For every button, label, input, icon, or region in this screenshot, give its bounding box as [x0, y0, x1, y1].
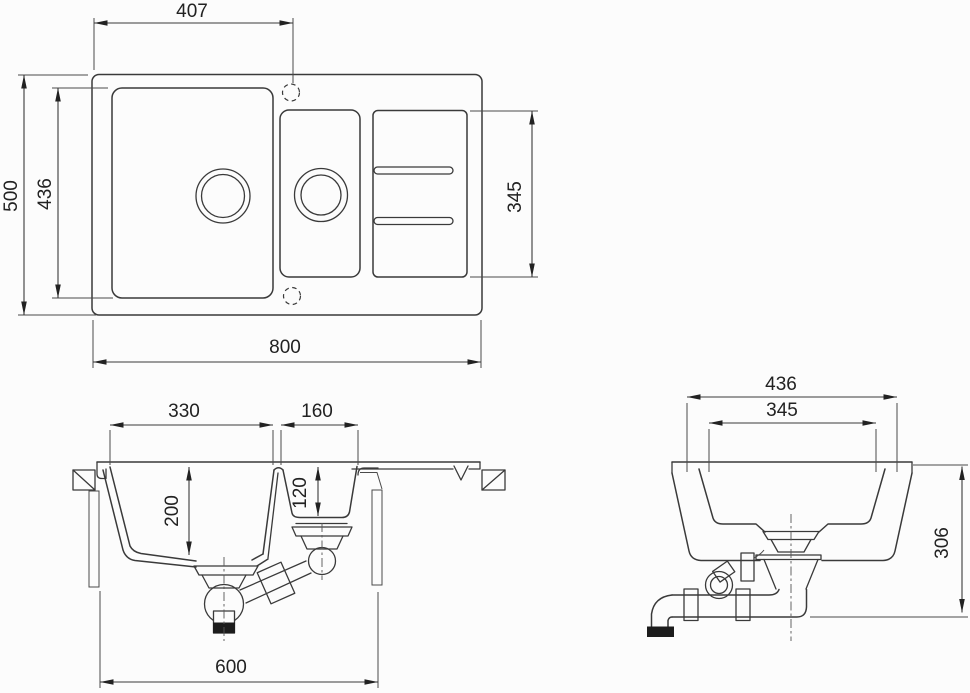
drainboard-groove-2 — [374, 218, 453, 225]
cabinet-wall-left — [89, 491, 99, 587]
dim-tap-hole-offset: 407 — [94, 1, 293, 83]
dim-label-200: 200 — [162, 495, 183, 527]
pipe-coupling-1 — [684, 589, 698, 621]
sink-section — [97, 462, 480, 567]
dim-drainboard-length: 345 — [470, 111, 538, 277]
side-inner-wall-left — [699, 469, 765, 532]
dim-label-160: 160 — [301, 401, 333, 422]
counter-edge-right — [482, 470, 505, 490]
overflow-hose-end-inner — [711, 577, 728, 594]
tap-hole-top — [283, 84, 300, 101]
dim-cabinet-width: 600 — [100, 591, 378, 688]
half-drain-hole-inner — [301, 175, 341, 215]
side-outer-wall-left — [672, 473, 760, 561]
side-outer-wall-right — [822, 473, 912, 561]
sink-technical-drawing: 407 500 436 345 800 — [0, 0, 970, 693]
side-overflow-assembly — [706, 550, 765, 599]
tap-hole-bottom — [284, 288, 301, 305]
overflow-corrugated-band — [741, 553, 754, 581]
dim-bowl-length: 436 — [35, 88, 113, 298]
side-view: 436 345 306 — [648, 374, 969, 641]
counter-edge-left — [73, 470, 95, 490]
dim-label-436-side: 436 — [765, 374, 797, 395]
main-drain-hole — [196, 169, 250, 223]
dim-label-330: 330 — [168, 401, 200, 422]
dim-label-600: 600 — [215, 657, 247, 678]
dim-install-height: 306 — [810, 465, 968, 617]
main-drain-assembly — [194, 557, 258, 641]
main-bowl — [112, 88, 273, 298]
dim-label-436-top: 436 — [35, 178, 56, 210]
main-drain-hole-inner — [202, 175, 245, 218]
dim-half-bowl-depth: 120 — [290, 467, 318, 516]
pipe-end-cap — [648, 627, 674, 637]
cabinet-wall-right — [372, 490, 382, 585]
dim-label-500: 500 — [1, 180, 22, 212]
drainboard — [373, 111, 467, 278]
sink-side-section — [672, 462, 912, 561]
dim-main-bowl-depth: 200 — [162, 467, 189, 555]
half-drain-hole — [295, 169, 348, 222]
pipe-coupling-2 — [736, 589, 750, 621]
dim-main-bowl-width: 330 — [110, 401, 273, 465]
technical-drawing-page: 407 500 436 345 800 — [0, 0, 970, 693]
dim-overall-width: 800 — [93, 320, 481, 368]
dim-half-bowl-width: 160 — [281, 401, 358, 465]
elbow-inner — [668, 617, 672, 627]
divider-left-wall — [263, 470, 274, 554]
dim-label-120: 120 — [290, 477, 311, 509]
half-drain-assembly — [292, 523, 352, 580]
dim-label-407: 407 — [176, 1, 208, 22]
dim-label-306: 306 — [932, 527, 953, 559]
dim-label-345-side: 345 — [766, 400, 798, 421]
front-view: 330 160 200 120 600 — [73, 401, 505, 688]
dim-label-800: 800 — [269, 337, 301, 358]
elbow-outer — [652, 595, 673, 627]
drainboard-groove-1 — [374, 167, 453, 174]
dim-side-bowl-length: 345 — [709, 400, 876, 472]
side-inner-wall-right — [819, 469, 885, 532]
corrugated-connector-pipe — [240, 561, 311, 604]
top-view: 407 500 436 345 800 — [1, 1, 538, 368]
divider-top — [274, 468, 283, 470]
dim-label-345-top: 345 — [505, 181, 526, 213]
side-drain-assembly — [756, 514, 821, 641]
